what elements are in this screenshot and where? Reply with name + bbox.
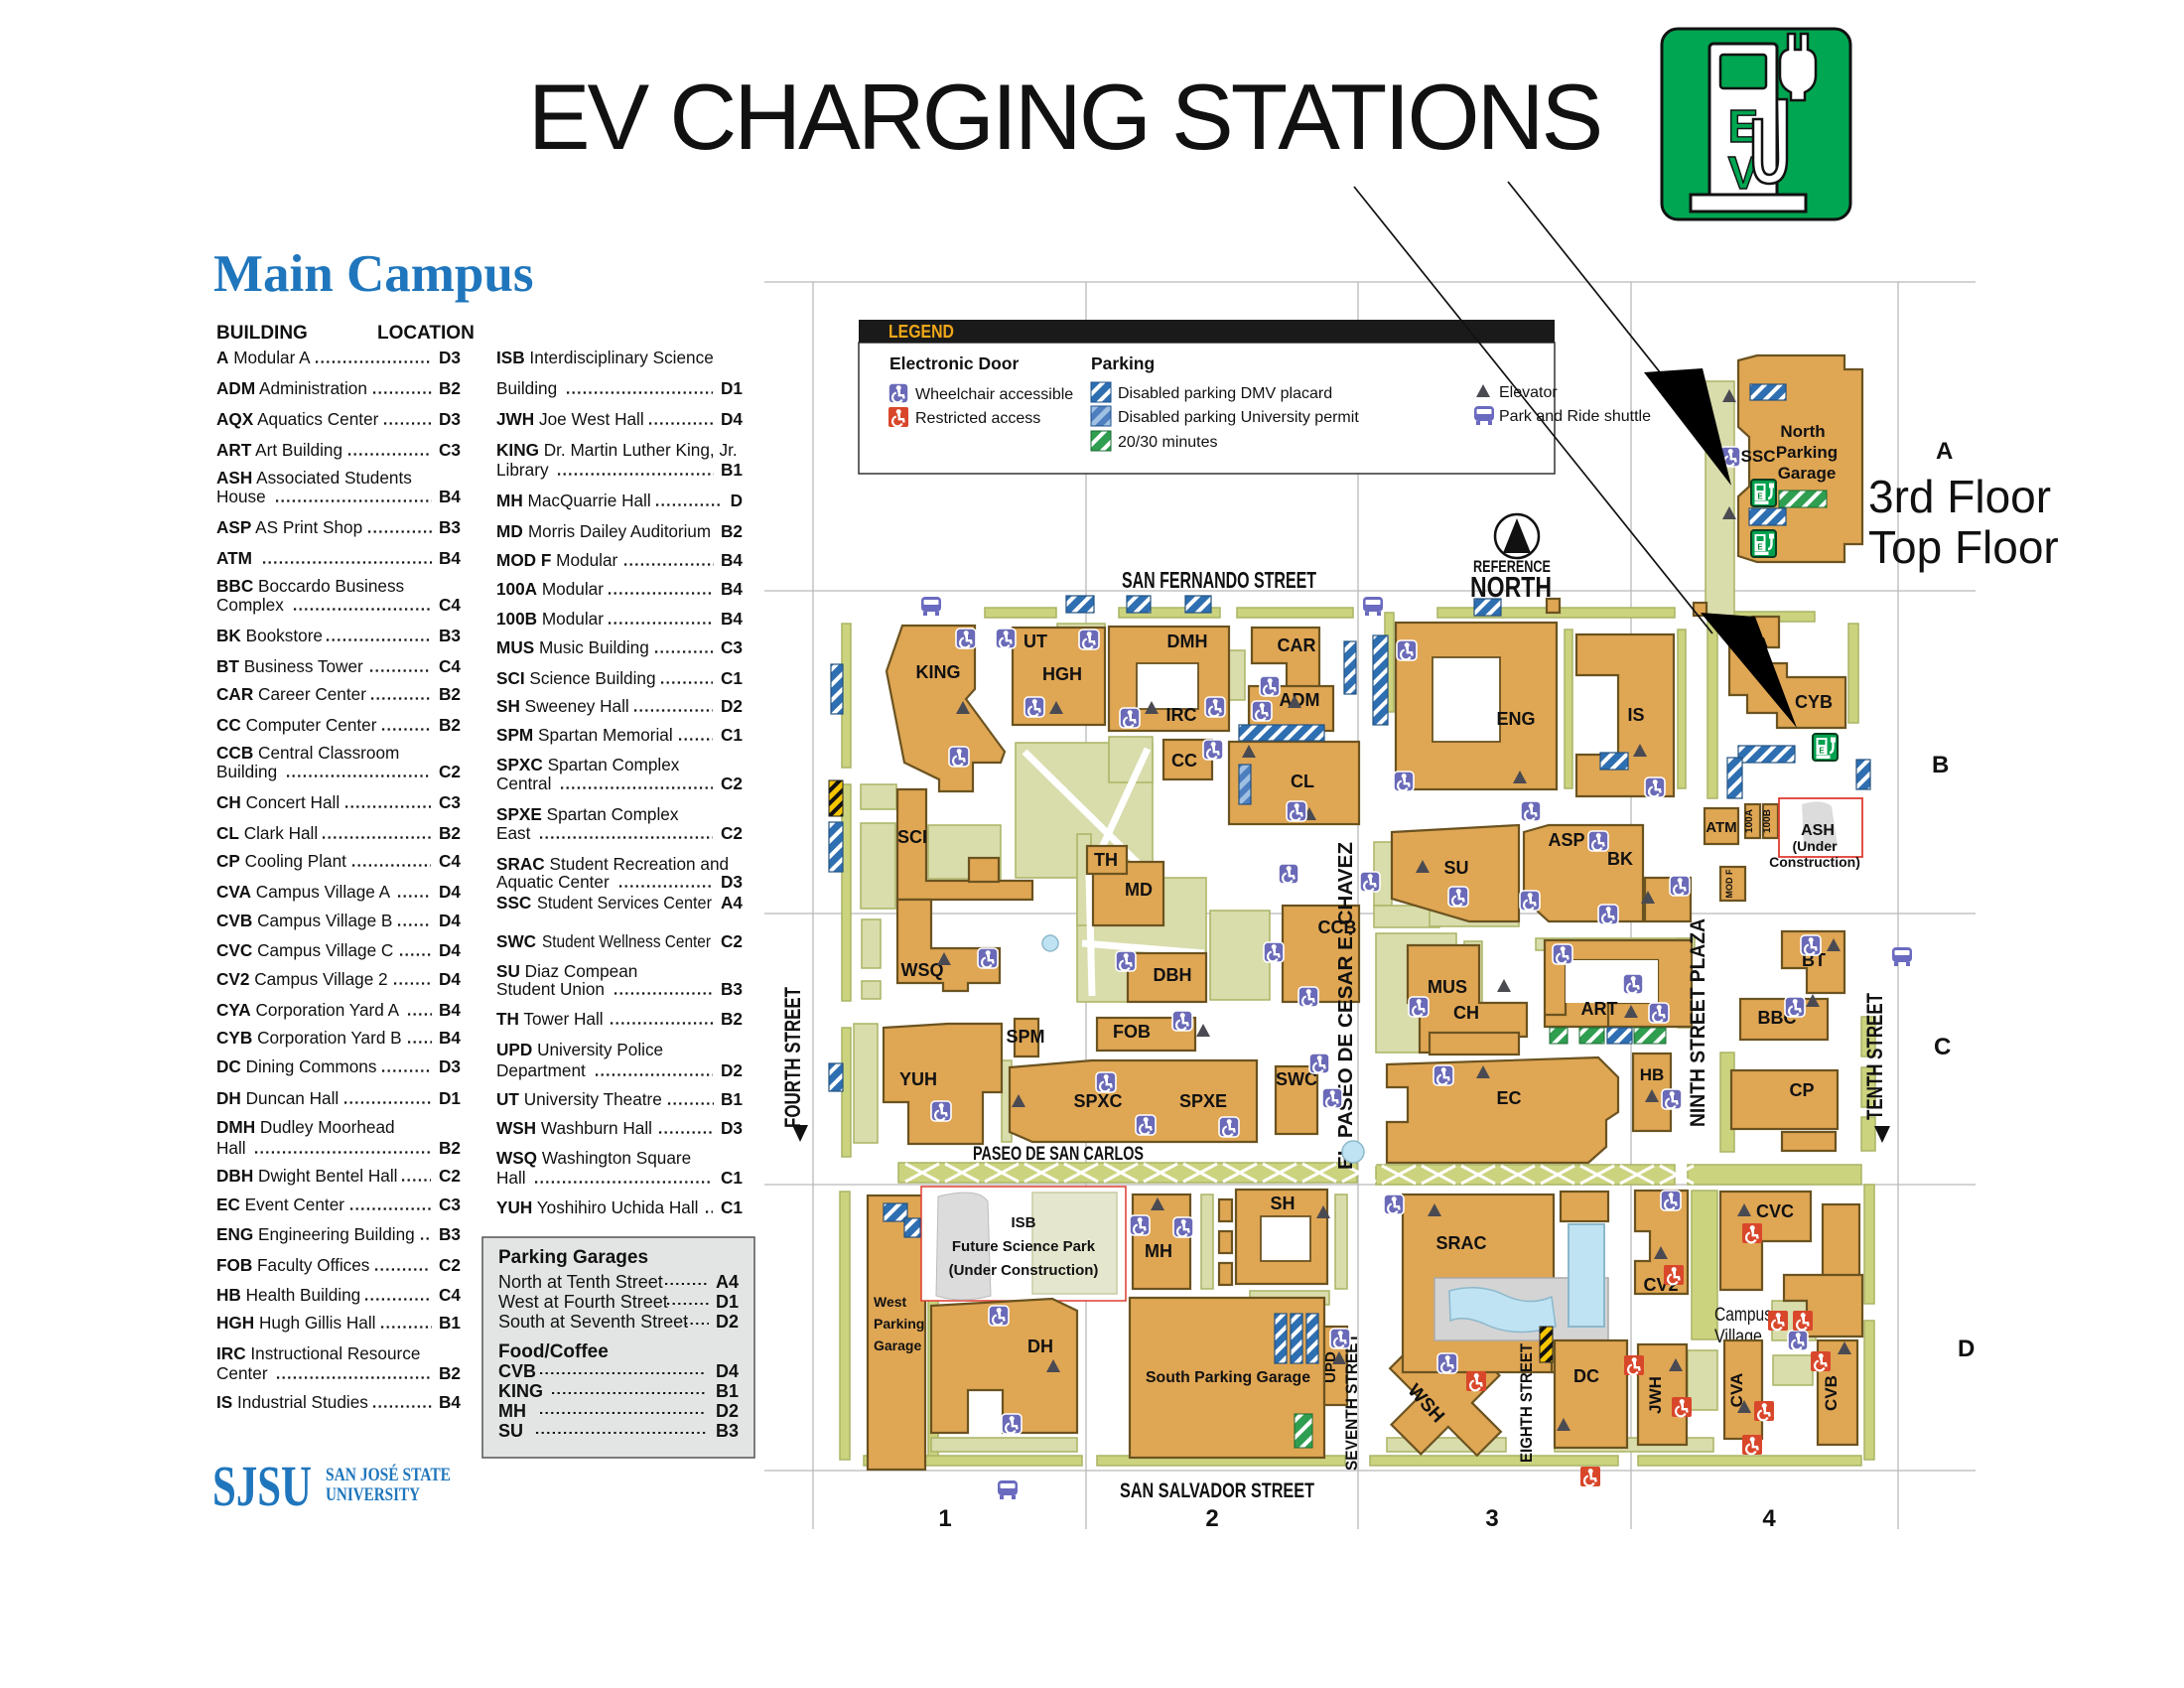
svg-text:CV2 Campus Village 2: CV2 Campus Village 2 [216, 969, 388, 989]
svg-text:CYA Corporation Yard A: CYA Corporation Yard A [216, 1000, 400, 1020]
svg-text:SCI Science Building: SCI Science Building [496, 668, 656, 688]
svg-text:A Modular A: A Modular A [216, 348, 311, 367]
svg-text:C3: C3 [439, 792, 461, 812]
svg-text:D1: D1 [439, 1088, 461, 1108]
svg-text:Electronic Door: Electronic Door [889, 353, 1019, 373]
svg-text:UPD University Police: UPD University Police [496, 1040, 663, 1059]
svg-text:C3: C3 [721, 637, 743, 657]
svg-text:B4: B4 [439, 1000, 461, 1020]
svg-text:CH Concert Hall: CH Concert Hall [216, 792, 340, 812]
svg-text:B4: B4 [439, 548, 461, 568]
svg-text:D1: D1 [716, 1292, 739, 1312]
svg-text:C1: C1 [721, 1197, 743, 1217]
svg-text:D: D [731, 491, 743, 510]
svg-text:WSH Washburn Hall: WSH Washburn Hall [496, 1118, 652, 1138]
svg-text:ATM: ATM [216, 548, 252, 568]
svg-text:SJSU: SJSU [212, 1454, 312, 1518]
svg-text:B4: B4 [439, 1392, 461, 1412]
svg-text:CAR: CAR [1278, 635, 1316, 655]
svg-text:EC Event Center: EC Event Center [216, 1195, 344, 1214]
svg-text:MUS Music Building: MUS Music Building [496, 637, 649, 657]
svg-text:3rd Floor: 3rd Floor [1868, 471, 2051, 522]
svg-text:A4: A4 [721, 893, 743, 913]
svg-text:Parking: Parking [1776, 443, 1838, 462]
svg-text:IS: IS [1627, 705, 1644, 725]
svg-text:North at Tenth Street: North at Tenth Street [498, 1272, 663, 1292]
svg-text:UT University Theatre: UT University Theatre [496, 1089, 662, 1109]
svg-text:CL Clark Hall: CL Clark Hall [216, 823, 318, 843]
svg-text:CVB: CVB [1822, 1375, 1841, 1411]
svg-text:SEVENTH STREET: SEVENTH STREET [1342, 1333, 1361, 1471]
svg-text:B: B [1932, 752, 1949, 778]
svg-text:Hall: Hall [216, 1138, 246, 1158]
svg-text:SCI: SCI [897, 827, 927, 847]
svg-text:ISB Interdisciplinary Science: ISB Interdisciplinary Science [496, 348, 714, 367]
svg-text:Hall: Hall [496, 1168, 526, 1188]
svg-text:CVA Campus Village A: CVA Campus Village A [216, 882, 391, 902]
svg-text:South Parking Garage: South Parking Garage [1146, 1369, 1310, 1386]
svg-text:B3: B3 [439, 1224, 461, 1244]
svg-text:WSQ Washington Square: WSQ Washington Square [496, 1148, 691, 1168]
svg-text:ISB: ISB [1011, 1214, 1035, 1231]
svg-text:MOD F: MOD F [1724, 869, 1734, 898]
svg-text:FOURTH STREET: FOURTH STREET [780, 987, 805, 1128]
svg-text:D3: D3 [721, 1118, 743, 1138]
svg-text:CAR Career Center: CAR Career Center [216, 684, 366, 704]
svg-text:D3: D3 [721, 872, 743, 892]
svg-text:DBH Dwight Bentel Hall: DBH Dwight Bentel Hall [216, 1166, 397, 1186]
svg-text:SAN FERNANDO STREET: SAN FERNANDO STREET [1122, 567, 1316, 593]
svg-text:MOD F Modular: MOD F Modular [496, 550, 618, 570]
svg-text:D2: D2 [716, 1312, 739, 1332]
svg-text:Elevator: Elevator [1499, 384, 1558, 401]
svg-text:CVB: CVB [498, 1361, 536, 1381]
svg-text:EL PASEO DE CESAR E. CHAVEZ: EL PASEO DE CESAR E. CHAVEZ [1335, 842, 1357, 1170]
svg-text:B2: B2 [439, 1363, 461, 1383]
svg-text:Disabled parking DMV placard: Disabled parking DMV placard [1118, 385, 1332, 402]
svg-text:C4: C4 [439, 851, 461, 871]
svg-text:SPM Spartan Memorial: SPM Spartan Memorial [496, 725, 673, 745]
svg-text:Building: Building [496, 378, 557, 398]
svg-text:20/30 minutes: 20/30 minutes [1118, 434, 1218, 451]
svg-text:ENG: ENG [1496, 709, 1535, 729]
svg-text:B2: B2 [439, 823, 461, 843]
svg-text:SRAC: SRAC [1435, 1233, 1486, 1253]
svg-text:IS Industrial Studies: IS Industrial Studies [216, 1392, 368, 1412]
svg-text:IRC: IRC [1166, 705, 1197, 725]
svg-text:C4: C4 [439, 656, 461, 676]
svg-text:A4: A4 [716, 1272, 739, 1292]
svg-text:100B Modular: 100B Modular [496, 609, 604, 629]
svg-text:Library: Library [496, 460, 549, 480]
svg-text:DMH: DMH [1167, 632, 1208, 651]
svg-text:West: West [874, 1294, 907, 1310]
svg-text:(Under Construction): (Under Construction) [949, 1262, 1099, 1279]
svg-text:Aquatic Center: Aquatic Center [496, 872, 610, 892]
svg-text:Main Campus: Main Campus [213, 245, 533, 303]
svg-text:B1: B1 [721, 460, 743, 480]
svg-text:Parking Garages: Parking Garages [498, 1247, 648, 1268]
svg-text:Department: Department [496, 1060, 586, 1080]
svg-text:Central: Central [496, 774, 551, 793]
svg-text:DC Dining Commons: DC Dining Commons [216, 1056, 376, 1076]
svg-text:B2: B2 [721, 521, 743, 541]
svg-text:BK: BK [1607, 849, 1633, 869]
svg-text:SRAC Student Recreation and: SRAC Student Recreation and [496, 854, 729, 874]
svg-text:C1: C1 [721, 1168, 743, 1188]
svg-text:B2: B2 [439, 1138, 461, 1158]
svg-text:D3: D3 [439, 409, 461, 429]
svg-text:UT: UT [1024, 632, 1047, 651]
svg-text:ATM: ATM [1706, 819, 1736, 836]
svg-text:B4: B4 [439, 1028, 461, 1048]
svg-text:SWC: SWC [496, 931, 536, 951]
svg-text:NINTH STREET PLAZA: NINTH STREET PLAZA [1687, 918, 1709, 1127]
svg-text:Wheelchair accessible: Wheelchair accessible [915, 386, 1073, 403]
svg-text:SPM: SPM [1006, 1027, 1044, 1047]
svg-text:LOCATION: LOCATION [377, 323, 475, 344]
svg-text:C2: C2 [721, 823, 743, 843]
svg-text:BT Business Tower: BT Business Tower [216, 656, 363, 676]
svg-text:FOB Faculty Offices: FOB Faculty Offices [216, 1255, 369, 1275]
svg-text:Morris Dailey Auditorium: Morris Dailey Auditorium [528, 521, 711, 541]
svg-text:D4: D4 [439, 882, 461, 902]
svg-text:BK Bookstore: BK Bookstore [216, 626, 323, 645]
svg-text:UNIVERSITY: UNIVERSITY [326, 1484, 420, 1505]
svg-text:CVC: CVC [1756, 1201, 1794, 1221]
svg-text:SU Diaz Compean: SU Diaz Compean [496, 961, 637, 981]
svg-text:C3: C3 [439, 440, 461, 460]
svg-text:HB: HB [1640, 1065, 1665, 1084]
svg-text:D4: D4 [721, 409, 743, 429]
svg-text:CYB Corporation Yard B: CYB Corporation Yard B [216, 1028, 402, 1048]
svg-text:LEGEND: LEGEND [888, 322, 954, 342]
svg-text:D: D [1958, 1336, 1975, 1362]
svg-text:PASEO DE SAN CARLOS: PASEO DE SAN CARLOS [973, 1144, 1144, 1165]
svg-text:D4: D4 [439, 969, 461, 989]
svg-text:Garage: Garage [1778, 464, 1837, 483]
svg-text:HGH Hugh Gillis Hall: HGH Hugh Gillis Hall [216, 1313, 375, 1333]
svg-text:SPXC Spartan Complex: SPXC Spartan Complex [496, 755, 680, 774]
svg-text:4: 4 [1762, 1505, 1776, 1532]
svg-text:West at Fourth Street: West at Fourth Street [498, 1292, 668, 1312]
svg-text:C3: C3 [439, 1195, 461, 1214]
svg-text:MH: MH [1145, 1241, 1172, 1261]
svg-text:Park and Ride shuttle: Park and Ride shuttle [1499, 408, 1651, 425]
svg-text:C1: C1 [721, 725, 743, 745]
svg-text:CC Computer Center: CC Computer Center [216, 715, 377, 735]
svg-text:Campus: Campus [1714, 1305, 1772, 1326]
svg-text:B2: B2 [721, 1009, 743, 1029]
svg-text:Student Services Center: Student Services Center [537, 893, 712, 913]
svg-text:CCB Central Classroom: CCB Central Classroom [216, 743, 399, 763]
svg-text:ART: ART [1581, 999, 1618, 1019]
svg-text:Food/Coffee: Food/Coffee [498, 1341, 609, 1362]
svg-text:TH Tower Hall: TH Tower Hall [496, 1009, 604, 1029]
svg-text:House: House [216, 487, 266, 506]
svg-text:CVC Campus Village C: CVC Campus Village C [216, 940, 393, 960]
svg-text:D3: D3 [439, 348, 461, 367]
svg-text:TH: TH [1094, 850, 1118, 870]
svg-text:CP: CP [1789, 1080, 1814, 1100]
svg-text:SH: SH [1270, 1194, 1295, 1213]
svg-text:Parking: Parking [874, 1316, 924, 1332]
svg-text:C4: C4 [439, 1285, 461, 1305]
svg-text:B2: B2 [439, 684, 461, 704]
svg-text:DBH: DBH [1154, 965, 1192, 985]
svg-text:CH: CH [1453, 1003, 1479, 1023]
svg-text:D1: D1 [721, 378, 743, 398]
svg-text:1: 1 [938, 1505, 951, 1532]
svg-text:North: North [1780, 422, 1825, 441]
svg-text:D4: D4 [439, 940, 461, 960]
svg-text:FOB: FOB [1113, 1022, 1151, 1042]
svg-text:C1: C1 [721, 668, 743, 688]
svg-text:MD: MD [1125, 880, 1153, 900]
svg-text:100A: 100A [1744, 809, 1755, 833]
svg-text:B1: B1 [439, 1313, 461, 1333]
svg-text:MH: MH [498, 1401, 526, 1421]
svg-text:100B: 100B [1762, 809, 1773, 833]
svg-text:Construction): Construction) [1769, 854, 1860, 870]
svg-text:3: 3 [1485, 1505, 1498, 1532]
svg-text:B4: B4 [439, 487, 461, 506]
svg-text:D4: D4 [716, 1361, 739, 1381]
svg-text:SSC: SSC [496, 893, 531, 913]
svg-text:Building: Building [216, 762, 277, 781]
svg-text:Disabled parking University pe: Disabled parking University permit [1118, 409, 1359, 426]
svg-text:SAN SALVADOR STREET: SAN SALVADOR STREET [1120, 1479, 1314, 1502]
svg-text:C2: C2 [439, 1255, 461, 1275]
svg-text:CP Cooling Plant: CP Cooling Plant [216, 851, 346, 871]
svg-text:MUS: MUS [1428, 977, 1467, 997]
svg-text:Future Science Park: Future Science Park [952, 1238, 1096, 1255]
svg-text:KING: KING [498, 1381, 543, 1401]
svg-text:B1: B1 [716, 1381, 739, 1401]
svg-text:YUH Yoshihiro Uchida Hall: YUH Yoshihiro Uchida Hall [496, 1197, 699, 1217]
svg-text:BBC Boccardo Business: BBC Boccardo Business [216, 576, 404, 596]
svg-text:B3: B3 [439, 517, 461, 537]
svg-text:SPXE Spartan Complex: SPXE Spartan Complex [496, 804, 679, 824]
svg-text:Complex: Complex [216, 595, 284, 615]
svg-text:Center: Center [216, 1363, 268, 1383]
svg-text:East: East [496, 823, 531, 843]
svg-text:WSQ: WSQ [901, 960, 944, 980]
svg-text:IRC Instructional Resource: IRC Instructional Resource [216, 1343, 420, 1363]
svg-text:ASH: ASH [1801, 822, 1835, 839]
svg-text:Student Union: Student Union [496, 979, 605, 999]
svg-text:Top Floor: Top Floor [1868, 521, 2059, 573]
svg-text:Student Wellness Center: Student Wellness Center [542, 931, 711, 951]
svg-text:2: 2 [1205, 1505, 1218, 1532]
svg-text:Parking: Parking [1091, 353, 1155, 373]
svg-text:DMH Dudley Moorhead: DMH Dudley Moorhead [216, 1117, 395, 1137]
svg-text:B4: B4 [721, 550, 743, 570]
svg-text:D4: D4 [439, 911, 461, 930]
svg-text:MD: MD [496, 521, 523, 541]
svg-text:ART Art Building: ART Art Building [216, 440, 342, 460]
svg-text:ADM Administration: ADM Administration [216, 378, 367, 398]
svg-text:100A Modular: 100A Modular [496, 579, 604, 599]
svg-text:EIGHTH STREET: EIGHTH STREET [1517, 1342, 1536, 1463]
svg-text:JWH: JWH [1646, 1376, 1665, 1414]
svg-text:B1: B1 [721, 1089, 743, 1109]
svg-text:ASP: ASP [1548, 830, 1584, 850]
svg-text:YUH: YUH [899, 1069, 937, 1089]
svg-text:DC: DC [1573, 1366, 1599, 1386]
svg-text:EV CHARGING STATIONS: EV CHARGING STATIONS [528, 65, 1600, 169]
svg-text:CYB: CYB [1795, 692, 1833, 712]
svg-text:(Under: (Under [1792, 838, 1838, 854]
svg-text:B3: B3 [721, 979, 743, 999]
svg-text:SU: SU [498, 1421, 523, 1441]
svg-text:SSC: SSC [1741, 447, 1776, 466]
svg-text:ASP AS Print Shop: ASP AS Print Shop [216, 517, 362, 537]
svg-text:BUILDING: BUILDING [216, 323, 308, 344]
svg-text:C: C [1934, 1034, 1951, 1060]
svg-text:B3: B3 [439, 626, 461, 645]
svg-text:DH: DH [1027, 1336, 1053, 1356]
svg-text:D2: D2 [716, 1401, 739, 1421]
svg-text:C2: C2 [439, 762, 461, 781]
svg-text:CL: CL [1291, 772, 1314, 791]
svg-text:DH Duncan Hall: DH Duncan Hall [216, 1088, 339, 1108]
svg-text:AQX Aquatics Center: AQX Aquatics Center [216, 409, 379, 429]
svg-text:EC: EC [1496, 1088, 1521, 1108]
svg-text:KING: KING [916, 662, 961, 682]
svg-text:Garage: Garage [874, 1337, 921, 1353]
svg-text:D2: D2 [721, 696, 743, 716]
svg-text:SH Sweeney Hall: SH Sweeney Hall [496, 696, 629, 716]
svg-text:C2: C2 [439, 1166, 461, 1186]
svg-text:C4: C4 [439, 595, 461, 615]
svg-text:SAN JOSÉ STATE: SAN JOSÉ STATE [326, 1464, 451, 1485]
svg-text:B2: B2 [439, 715, 461, 735]
svg-text:B2: B2 [439, 378, 461, 398]
svg-text:SU: SU [1443, 858, 1468, 878]
svg-text:D3: D3 [439, 1056, 461, 1076]
svg-text:SPXC: SPXC [1073, 1091, 1122, 1111]
svg-text:TENTH STREET: TENTH STREET [1862, 993, 1887, 1120]
svg-text:B4: B4 [721, 609, 743, 629]
svg-text:CVB Campus Village B: CVB Campus Village B [216, 911, 392, 930]
svg-text:ENG Engineering Building: ENG Engineering Building [216, 1224, 415, 1244]
svg-text:JWH Joe West Hall: JWH Joe West Hall [496, 409, 644, 429]
svg-text:B3: B3 [716, 1421, 739, 1441]
svg-text:ASH Associated Students: ASH Associated Students [216, 468, 412, 488]
svg-text:B4: B4 [721, 579, 743, 599]
svg-text:C2: C2 [721, 774, 743, 793]
svg-text:South at Seventh Street: South at Seventh Street [498, 1312, 688, 1332]
svg-text:A: A [1936, 438, 1953, 465]
svg-text:HB Health Building: HB Health Building [216, 1285, 360, 1305]
svg-text:SPXE: SPXE [1179, 1091, 1227, 1111]
svg-text:C2: C2 [721, 931, 743, 951]
svg-text:KING Dr. Martin Luther King, J: KING Dr. Martin Luther King, Jr. [496, 440, 738, 460]
svg-text:D2: D2 [721, 1060, 743, 1080]
svg-text:HGH: HGH [1042, 664, 1082, 684]
svg-text:CC: CC [1171, 751, 1197, 771]
svg-text:Restricted access: Restricted access [915, 410, 1040, 427]
svg-text:MH MacQuarrie Hall: MH MacQuarrie Hall [496, 491, 651, 510]
